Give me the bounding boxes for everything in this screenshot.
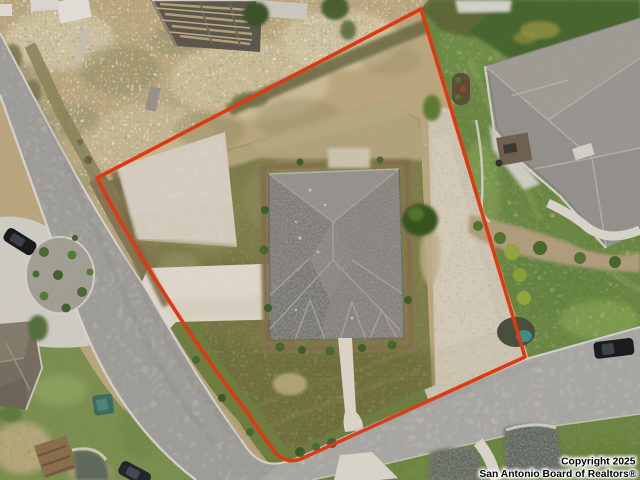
svg-text:San Antonio Board of Realtors®: San Antonio Board of Realtors® (479, 469, 637, 480)
svg-text:Copyright 2025: Copyright 2025 (561, 457, 636, 468)
